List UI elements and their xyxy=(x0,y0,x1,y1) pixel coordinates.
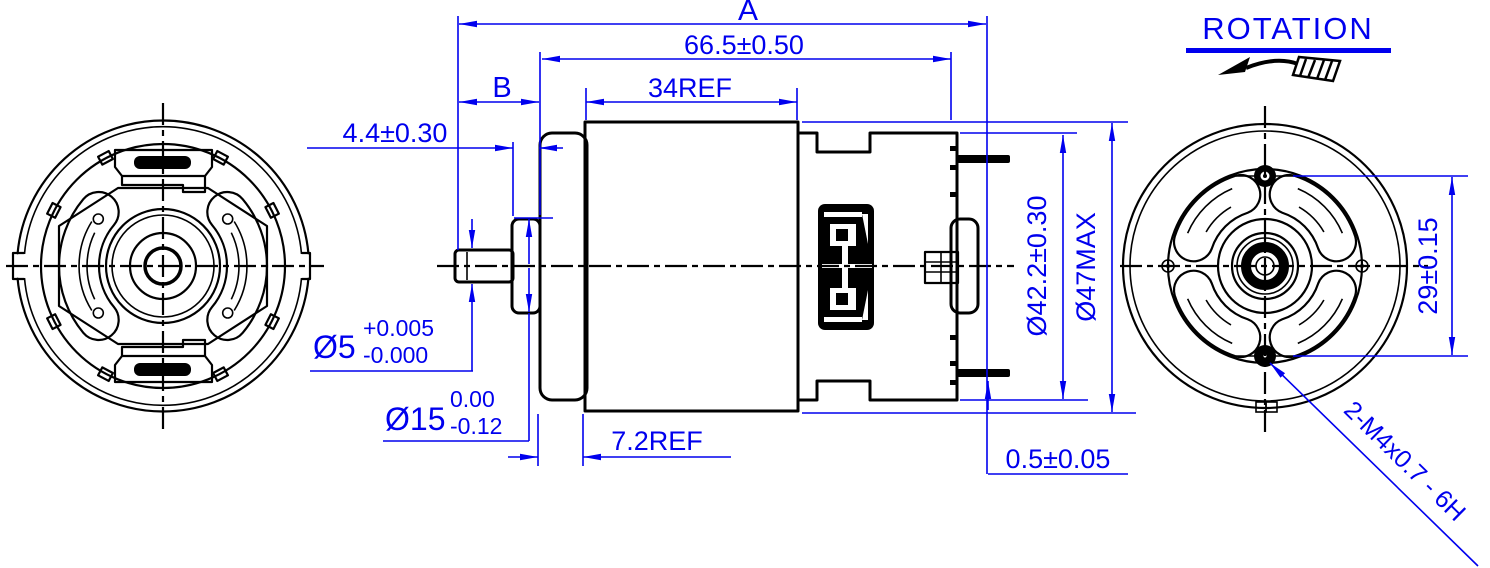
terminal-top xyxy=(957,155,1010,163)
terminal-bottom xyxy=(957,369,1010,377)
dim-a-label: A xyxy=(738,0,758,27)
dim-shaft-tol-upper: +0.005 xyxy=(363,315,434,341)
dim-bushing-tol-lower: -0.12 xyxy=(450,413,502,439)
engineering-drawing: A 66.5±0.50 B 34REF 4.4±0.30 Ø5 xyxy=(0,0,1490,568)
dim-bushing-protrusion-label: 4.4±0.30 xyxy=(343,118,448,148)
dim-hole-spacing-label: 29±0.15 xyxy=(1413,217,1443,314)
dim-terminal-standoff-label: 0.5±0.05 xyxy=(1006,444,1111,474)
dim-shaft-dia-label: Ø5 xyxy=(313,329,356,365)
dim-overall-length-label: 66.5±0.50 xyxy=(684,30,804,60)
dim-max-dia-label: Ø47MAX xyxy=(1071,212,1101,322)
rotation-underline xyxy=(1186,48,1391,53)
dim-bushing-dia-label: Ø15 xyxy=(385,401,445,437)
dim-shaft-tol-lower: -0.000 xyxy=(363,342,428,368)
dim-b-label: B xyxy=(492,72,511,104)
dim-bushing-tol-upper: 0.00 xyxy=(450,386,495,412)
dim-case-dia-label: Ø42.2±0.30 xyxy=(1022,196,1052,337)
motor-drawing-page: A 66.5±0.50 B 34REF 4.4±0.30 Ø5 xyxy=(0,0,1490,568)
rotation-label: ROTATION xyxy=(1202,11,1374,46)
dim-endbell-length-label: 7.2REF xyxy=(611,426,703,456)
dim-stack-length-label: 34REF xyxy=(648,73,732,103)
